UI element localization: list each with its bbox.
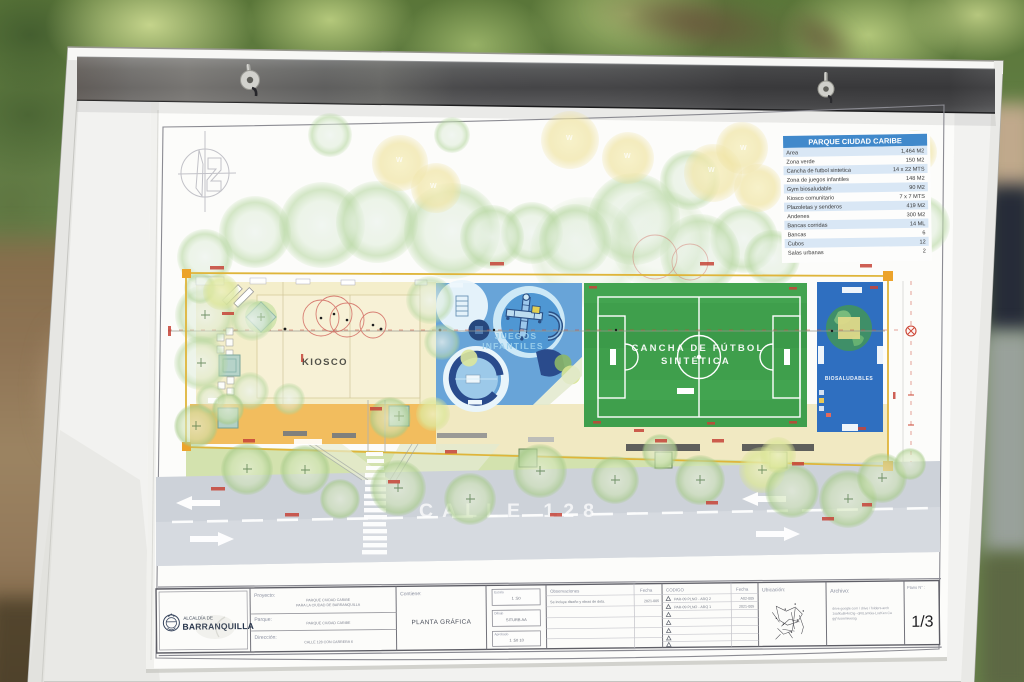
svg-text:A02-005: A02-005	[741, 597, 755, 601]
svg-text:2: 2	[923, 248, 926, 254]
svg-text:Escala: Escala	[494, 590, 504, 594]
svg-text:PAR-09 PLNO - ARQ 1: PAR-09 PLNO - ARQ 1	[674, 605, 711, 609]
svg-text:PARQUE CIUDAD CARIBE: PARQUE CIUDAD CARIBE	[808, 136, 902, 146]
svg-text:W: W	[566, 135, 573, 142]
svg-text:SITURB AA: SITURB AA	[506, 617, 527, 622]
svg-text:Dirección:: Dirección:	[255, 635, 277, 641]
svg-text:Cubos: Cubos	[788, 241, 804, 247]
svg-text:Andenes: Andenes	[787, 214, 809, 220]
svg-text:Archivo:: Archivo:	[830, 588, 850, 594]
svg-text:drive google com / drive / fol: drive google com / drive / folders-arch	[832, 606, 889, 611]
svg-text:1 :50 10: 1 :50 10	[509, 638, 524, 643]
svg-text:PAR-09 PLNO - ARQ 2: PAR-09 PLNO - ARQ 2	[674, 597, 711, 601]
svg-text:300 M2: 300 M2	[907, 212, 926, 218]
svg-text:JUEGOS: JUEGOS	[495, 331, 538, 341]
svg-text:1,464 M2: 1,464 M2	[901, 148, 924, 154]
svg-text:Bancas corridas: Bancas corridas	[787, 223, 827, 230]
svg-text:W: W	[396, 157, 403, 164]
svg-text:Parque:: Parque:	[254, 617, 272, 623]
svg-text:Bancas: Bancas	[788, 232, 807, 238]
svg-text:419 M2: 419 M2	[906, 203, 925, 209]
svg-text:INFANTILES: INFANTILES	[482, 341, 544, 351]
svg-text:PARA LA CIUDAD DE BARRANQUILL: PARA LA CIUDAD DE BARRANQUILLA	[296, 603, 361, 608]
svg-text:Zona verde: Zona verde	[786, 159, 814, 165]
svg-text:Plano N° :: Plano N° :	[907, 585, 925, 590]
svg-text:gg*/usmmiversg: gg*/usmmiversg	[832, 616, 856, 620]
svg-text:Cancha de futbol sintetica: Cancha de futbol sintetica	[787, 168, 852, 175]
svg-text:CANCHA DE FÚTBOL: CANCHA DE FÚTBOL	[631, 342, 764, 354]
svg-text:PARQUE CIUDAD CARIBE: PARQUE CIUDAD CARIBE	[306, 621, 351, 625]
svg-text:Gym biosaludable: Gym biosaludable	[787, 186, 832, 193]
svg-text:Aprobado: Aprobado	[494, 632, 508, 636]
svg-text:Observaciones: Observaciones	[550, 588, 580, 593]
svg-text:Zona de juegos infantiles: Zona de juegos infantiles	[787, 177, 849, 184]
svg-text:CALLE 128 CON CARRERA 6: CALLE 128 CON CARRERA 6	[304, 640, 353, 645]
svg-text:Area: Area	[786, 150, 799, 156]
svg-text:1/3: 1/3	[911, 614, 934, 631]
svg-text:Kiosco comunitario: Kiosco comunitario	[787, 195, 834, 202]
svg-text:6: 6	[922, 230, 925, 236]
svg-text:2021-005: 2021-005	[644, 599, 659, 603]
svg-text:KIOSCO: KIOSCO	[302, 357, 348, 368]
svg-text:14 x 22 MTS: 14 x 22 MTS	[893, 167, 925, 174]
svg-text:Fecha: Fecha	[736, 587, 749, 592]
svg-text:BIOSALUDABLES: BIOSALUDABLES	[825, 376, 874, 382]
svg-text:CODIGO: CODIGO	[666, 587, 684, 592]
svg-text:SINTÉTICA: SINTÉTICA	[661, 356, 731, 367]
svg-text:W: W	[740, 145, 747, 152]
svg-text:W: W	[430, 183, 437, 190]
svg-text:148 M2: 148 M2	[906, 176, 925, 182]
svg-text:90 M2: 90 M2	[909, 185, 925, 191]
svg-text:12: 12	[919, 239, 925, 245]
svg-text:Contiene:: Contiene:	[400, 591, 421, 597]
svg-text:Plazoletas y senderos: Plazoletas y senderos	[787, 204, 842, 211]
svg-text:W: W	[708, 167, 715, 174]
svg-text:Proyecto:: Proyecto:	[254, 593, 275, 599]
svg-text:14 ML: 14 ML	[910, 221, 926, 227]
svg-text:1 :50: 1 :50	[512, 596, 522, 601]
svg-text:2021-005: 2021-005	[739, 605, 754, 609]
svg-text:PARQUE CIUDAD CARIBE: PARQUE CIUDAD CARIBE	[306, 598, 351, 602]
svg-text:Salas urbanas: Salas urbanas	[788, 250, 824, 257]
svg-text:7 x 7 MTS: 7 x 7 MTS	[899, 194, 925, 200]
svg-text:1safKuBr4nCIg--qRtLamGa-LozKen: 1safKuBr4nCIg--qRtLamGa-LozKen Ca	[832, 611, 892, 616]
svg-text:150 M2: 150 M2	[906, 157, 925, 163]
svg-text:Se incluye diseño y obras de d: Se incluye diseño y obras de dota.	[550, 600, 605, 605]
svg-text:Ubicación:: Ubicación:	[762, 587, 785, 593]
svg-text:W: W	[624, 153, 631, 160]
svg-text:Fecha: Fecha	[640, 588, 653, 593]
svg-text:Dibujo: Dibujo	[494, 611, 503, 615]
